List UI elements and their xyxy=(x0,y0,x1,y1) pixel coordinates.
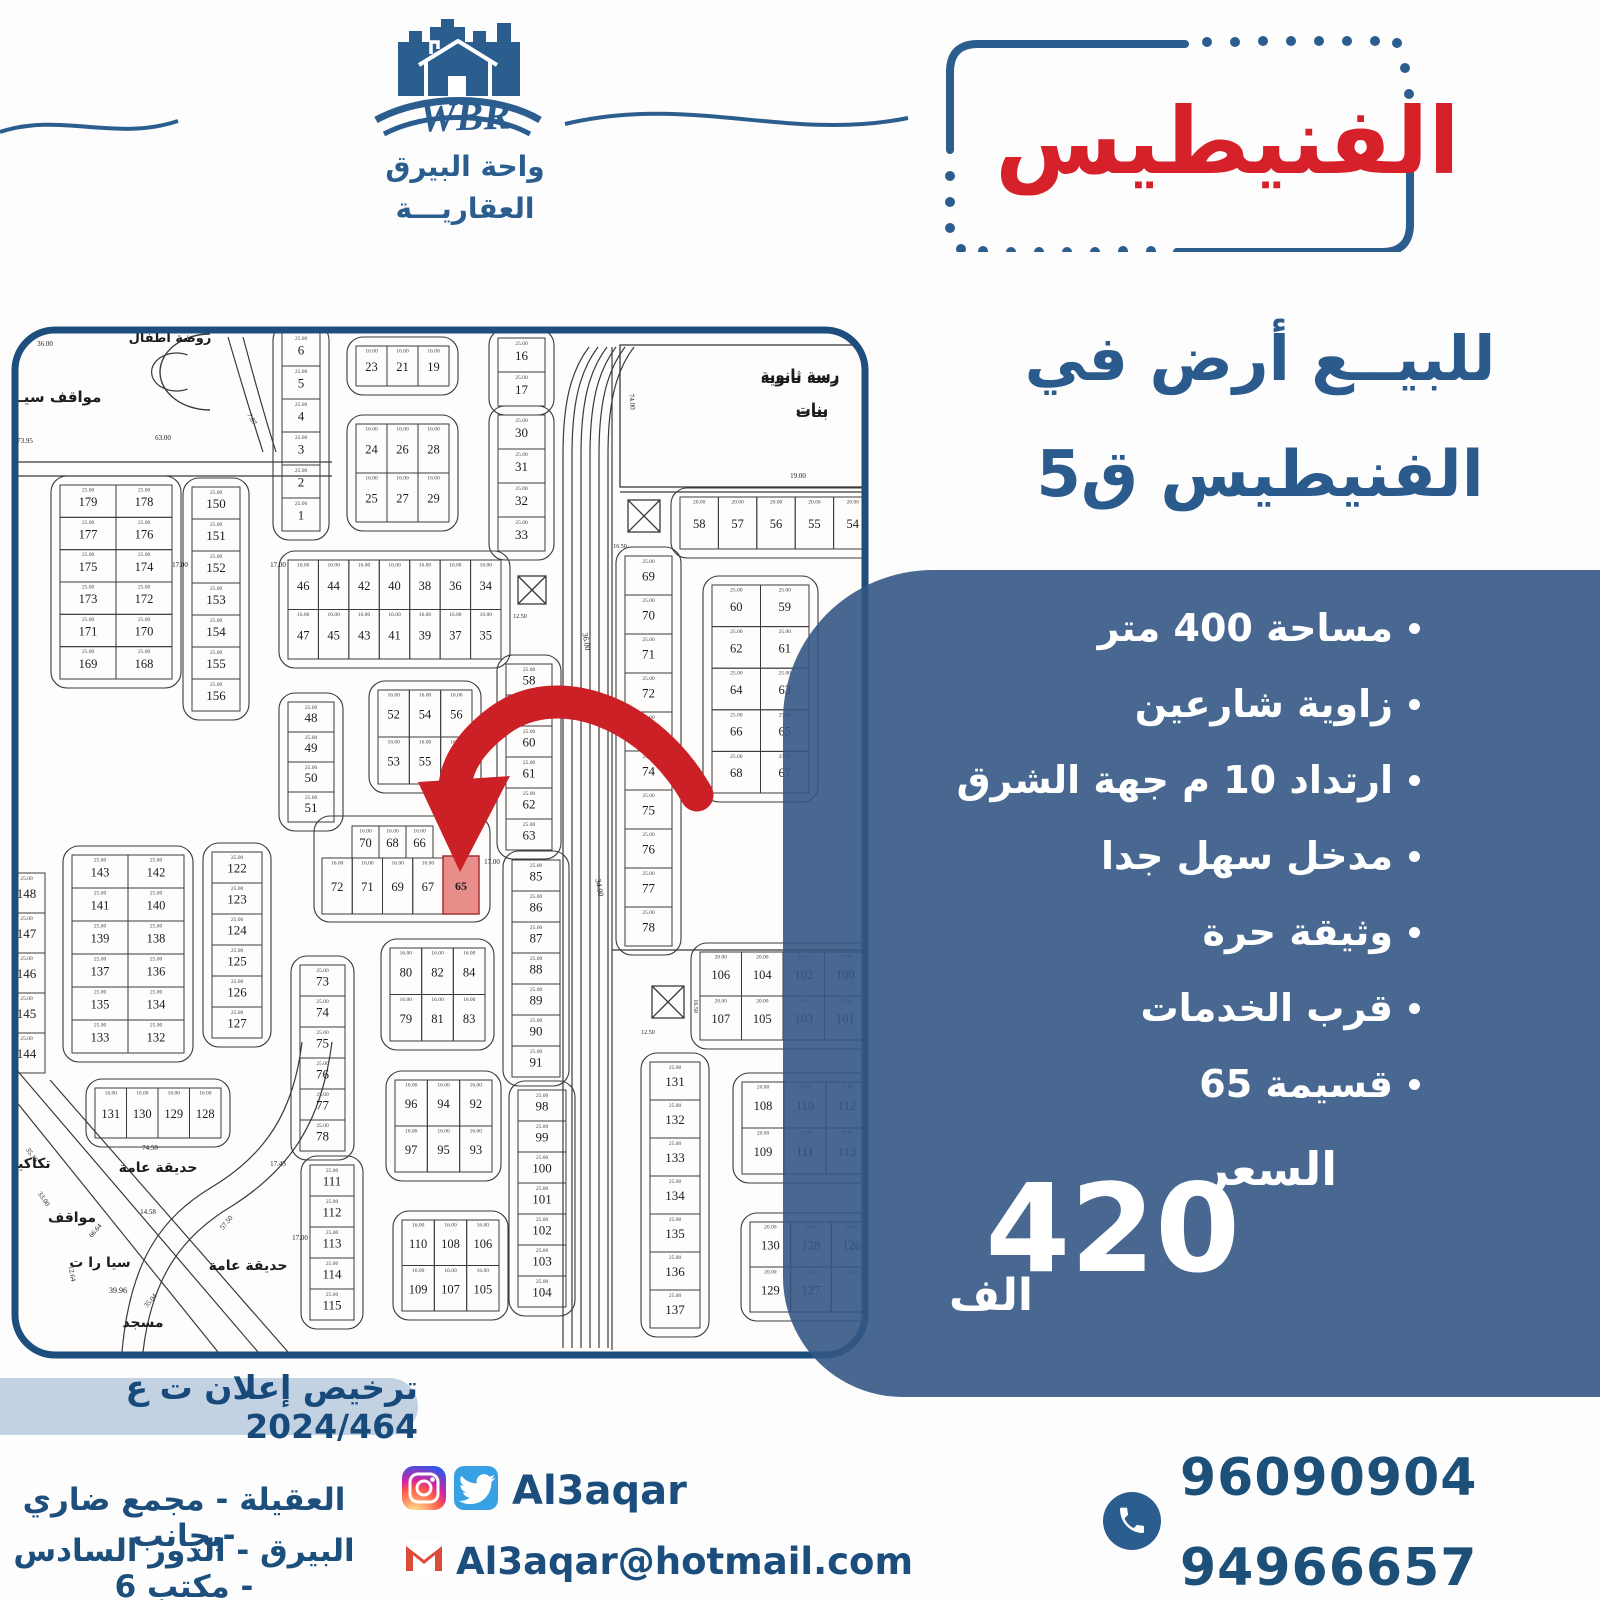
svg-text:16.00: 16.00 xyxy=(358,563,371,569)
svg-text:136: 136 xyxy=(665,1264,685,1279)
svg-text:25.00: 25.00 xyxy=(536,1248,549,1254)
svg-text:25.00: 25.00 xyxy=(231,886,244,892)
svg-text:90: 90 xyxy=(530,1024,543,1039)
svg-text:حديقة عامة: حديقة عامة xyxy=(119,1160,198,1176)
svg-text:16.00: 16.00 xyxy=(427,427,440,433)
headline-line2: الفنيطيس ق5 xyxy=(960,438,1560,512)
svg-text:53: 53 xyxy=(387,755,400,769)
svg-text:12.50: 12.50 xyxy=(641,1030,655,1036)
svg-text:63.00: 63.00 xyxy=(155,434,171,442)
bullet-text: قسيمة 65 xyxy=(1199,1062,1393,1106)
svg-text:103: 103 xyxy=(532,1254,552,1269)
svg-text:168: 168 xyxy=(135,657,154,671)
svg-text:56: 56 xyxy=(770,517,783,531)
svg-text:145: 145 xyxy=(17,1006,37,1021)
svg-text:حديقة عامة: حديقة عامة xyxy=(209,1258,288,1274)
svg-text:16.00: 16.00 xyxy=(419,563,432,569)
svg-text:68: 68 xyxy=(730,766,743,780)
svg-text:61: 61 xyxy=(779,641,792,655)
svg-text:171: 171 xyxy=(79,625,98,639)
svg-text:17.00: 17.00 xyxy=(484,858,500,866)
svg-text:106: 106 xyxy=(473,1237,492,1251)
svg-text:133: 133 xyxy=(91,1031,110,1045)
svg-text:16.00: 16.00 xyxy=(396,349,409,355)
area-title-box: الفنيطيس xyxy=(935,30,1520,252)
svg-text:25.00: 25.00 xyxy=(94,957,107,963)
svg-text:74.00: 74.00 xyxy=(627,394,636,411)
wave-right-icon xyxy=(565,114,908,125)
svg-text:20.00: 20.00 xyxy=(715,999,728,1005)
svg-text:25.00: 25.00 xyxy=(82,488,95,494)
svg-text:25.00: 25.00 xyxy=(326,1199,339,1205)
svg-text:49: 49 xyxy=(305,740,318,755)
svg-text:25.00: 25.00 xyxy=(730,754,743,760)
offer-bullet-item: مدخل سهل جدا xyxy=(1101,834,1420,878)
svg-text:174: 174 xyxy=(135,560,155,574)
svg-text:16.00: 16.00 xyxy=(419,693,432,699)
svg-text:بنات: بنات xyxy=(796,400,828,418)
offer-panel: مساحة 400 مترزاوية شارعينارتداد 10 م جهة… xyxy=(783,570,1600,1397)
svg-text:25.00: 25.00 xyxy=(523,822,536,828)
svg-text:106: 106 xyxy=(711,968,730,982)
svg-text:73.95: 73.95 xyxy=(17,437,33,445)
svg-text:25.00: 25.00 xyxy=(515,341,528,347)
svg-text:28: 28 xyxy=(427,443,440,457)
svg-text:25.00: 25.00 xyxy=(730,671,743,677)
wbr-wordmark: WBR xyxy=(399,90,531,143)
svg-text:74: 74 xyxy=(642,764,656,779)
svg-text:127: 127 xyxy=(227,1016,247,1031)
svg-text:146: 146 xyxy=(17,966,37,981)
svg-text:94: 94 xyxy=(437,1097,450,1111)
svg-text:142: 142 xyxy=(147,866,166,880)
svg-text:19.00: 19.00 xyxy=(790,472,806,480)
wave-left-icon xyxy=(0,121,178,132)
svg-text:25.00: 25.00 xyxy=(138,649,151,655)
svg-text:109: 109 xyxy=(754,1145,773,1159)
svg-text:16.00: 16.00 xyxy=(477,1268,490,1274)
svg-text:16: 16 xyxy=(515,348,529,363)
svg-text:25.00: 25.00 xyxy=(515,375,528,381)
svg-text:72: 72 xyxy=(642,686,655,701)
svg-text:16.00: 16.00 xyxy=(331,861,344,867)
svg-text:25.00: 25.00 xyxy=(642,832,655,838)
bullet-text: ارتداد 10 م جهة الشرق xyxy=(957,758,1393,802)
svg-text:25.00: 25.00 xyxy=(779,588,792,594)
svg-text:43: 43 xyxy=(358,628,371,642)
svg-text:140: 140 xyxy=(147,899,166,913)
bullet-text: مدخل سهل جدا xyxy=(1101,834,1393,878)
svg-text:25.00: 25.00 xyxy=(150,1023,163,1029)
svg-text:65: 65 xyxy=(455,879,467,893)
svg-text:76: 76 xyxy=(316,1067,330,1082)
svg-text:25.00: 25.00 xyxy=(305,765,318,771)
svg-text:99: 99 xyxy=(536,1130,549,1145)
svg-text:39.96: 39.96 xyxy=(109,1286,127,1295)
svg-text:64: 64 xyxy=(730,683,743,697)
svg-text:178: 178 xyxy=(135,495,154,509)
svg-text:36: 36 xyxy=(449,579,462,593)
svg-text:25.00: 25.00 xyxy=(316,968,329,974)
bullet-dot-icon xyxy=(1409,1079,1420,1090)
svg-text:16.00: 16.00 xyxy=(359,829,372,835)
svg-text:74: 74 xyxy=(316,1005,330,1020)
svg-text:131: 131 xyxy=(665,1074,685,1089)
svg-text:70: 70 xyxy=(642,608,655,623)
svg-text:16.00: 16.00 xyxy=(437,1083,450,1089)
phone-number-2: 94966657 xyxy=(1180,1538,1510,1598)
svg-text:23: 23 xyxy=(365,360,378,374)
svg-text:25.00: 25.00 xyxy=(730,588,743,594)
svg-text:141: 141 xyxy=(91,899,110,913)
svg-text:25.00: 25.00 xyxy=(295,336,308,342)
svg-text:25.00: 25.00 xyxy=(138,585,151,591)
svg-text:25.00: 25.00 xyxy=(642,871,655,877)
svg-text:25.00: 25.00 xyxy=(94,891,107,897)
svg-text:25.00: 25.00 xyxy=(530,956,543,962)
svg-text:25.00: 25.00 xyxy=(316,999,329,1005)
svg-text:25.00: 25.00 xyxy=(730,629,743,635)
svg-text:16.00: 16.00 xyxy=(386,829,399,835)
svg-text:16.00: 16.00 xyxy=(427,349,440,355)
svg-text:29: 29 xyxy=(427,492,440,506)
svg-text:17.00: 17.00 xyxy=(172,561,188,569)
svg-text:25.00: 25.00 xyxy=(210,490,223,496)
svg-text:75: 75 xyxy=(316,1036,329,1051)
svg-text:25.00: 25.00 xyxy=(669,1217,682,1223)
bullet-dot-icon xyxy=(1409,623,1420,634)
instagram-icon xyxy=(402,1466,446,1510)
svg-text:130: 130 xyxy=(133,1107,152,1121)
svg-text:124: 124 xyxy=(227,923,247,938)
bullet-text: مساحة 400 متر xyxy=(1098,606,1393,650)
svg-text:16.00: 16.00 xyxy=(463,997,476,1003)
svg-text:12.50: 12.50 xyxy=(513,614,527,620)
svg-text:86: 86 xyxy=(530,900,544,915)
svg-text:25.00: 25.00 xyxy=(231,979,244,985)
bullet-text: زاوية شارعين xyxy=(1135,682,1393,726)
svg-text:69: 69 xyxy=(391,880,404,894)
svg-text:136: 136 xyxy=(147,965,166,979)
svg-text:4: 4 xyxy=(298,409,305,424)
svg-text:25.00: 25.00 xyxy=(295,435,308,441)
svg-text:16.00: 16.00 xyxy=(470,1083,483,1089)
svg-text:20.00: 20.00 xyxy=(731,500,744,506)
svg-text:107: 107 xyxy=(441,1282,460,1296)
svg-text:16.00: 16.00 xyxy=(387,740,400,746)
svg-text:44: 44 xyxy=(327,579,340,593)
svg-text:16.00: 16.00 xyxy=(431,997,444,1003)
svg-text:20.00: 20.00 xyxy=(756,999,769,1005)
svg-text:16.00: 16.00 xyxy=(437,1129,450,1135)
svg-text:78: 78 xyxy=(642,920,655,935)
svg-text:5: 5 xyxy=(298,376,305,391)
bullet-dot-icon xyxy=(1409,1003,1420,1014)
svg-text:51: 51 xyxy=(305,800,318,815)
svg-text:19: 19 xyxy=(427,360,440,374)
svg-text:77: 77 xyxy=(316,1098,330,1113)
svg-text:20.00: 20.00 xyxy=(756,955,769,961)
svg-text:130: 130 xyxy=(761,1239,780,1253)
svg-text:25.00: 25.00 xyxy=(150,990,163,996)
svg-text:25.00: 25.00 xyxy=(515,452,528,458)
svg-text:27: 27 xyxy=(396,492,409,506)
svg-text:16.00: 16.00 xyxy=(413,829,426,835)
svg-text:1: 1 xyxy=(298,508,305,523)
svg-text:101: 101 xyxy=(532,1192,552,1207)
svg-text:68: 68 xyxy=(386,836,399,850)
svg-text:25.00: 25.00 xyxy=(523,791,536,797)
svg-text:6: 6 xyxy=(298,343,305,358)
svg-text:98: 98 xyxy=(536,1099,549,1114)
svg-text:20.00: 20.00 xyxy=(757,1131,770,1137)
svg-text:25.00: 25.00 xyxy=(295,501,308,507)
svg-text:25.00: 25.00 xyxy=(150,891,163,897)
headline-line1: للبيــع أرض في xyxy=(960,322,1560,395)
svg-text:16.00: 16.00 xyxy=(419,612,432,618)
svg-text:105: 105 xyxy=(473,1282,492,1296)
svg-text:24: 24 xyxy=(365,443,378,457)
svg-text:25.00: 25.00 xyxy=(231,948,244,954)
svg-text:20.00: 20.00 xyxy=(693,500,706,506)
svg-text:50: 50 xyxy=(305,770,318,785)
svg-text:25.00: 25.00 xyxy=(210,650,223,656)
svg-text:32: 32 xyxy=(515,493,528,508)
svg-text:72: 72 xyxy=(331,880,344,894)
svg-text:25.00: 25.00 xyxy=(82,649,95,655)
svg-text:37: 37 xyxy=(449,628,462,642)
svg-text:108: 108 xyxy=(441,1237,460,1251)
svg-text:62: 62 xyxy=(730,641,743,655)
svg-text:25.00: 25.00 xyxy=(210,554,223,560)
svg-text:25.00: 25.00 xyxy=(138,488,151,494)
svg-text:25.00: 25.00 xyxy=(515,486,528,492)
svg-text:16.00: 16.00 xyxy=(405,1083,418,1089)
svg-text:112: 112 xyxy=(322,1205,341,1220)
svg-text:25.00: 25.00 xyxy=(82,617,95,623)
svg-text:14.58: 14.58 xyxy=(140,1208,156,1216)
svg-text:16.00: 16.00 xyxy=(444,1268,457,1274)
svg-text:115: 115 xyxy=(322,1298,341,1313)
svg-text:58: 58 xyxy=(693,517,706,531)
svg-text:25.00: 25.00 xyxy=(642,598,655,604)
svg-text:16.00: 16.00 xyxy=(391,861,404,867)
svg-text:48: 48 xyxy=(305,710,318,725)
svg-text:66: 66 xyxy=(730,725,743,739)
svg-text:89: 89 xyxy=(530,993,543,1008)
svg-text:173: 173 xyxy=(79,592,98,606)
svg-text:35: 35 xyxy=(480,628,493,642)
svg-text:25.00: 25.00 xyxy=(515,418,528,424)
svg-text:25.00: 25.00 xyxy=(305,705,318,711)
svg-text:114: 114 xyxy=(322,1267,342,1282)
svg-text:40: 40 xyxy=(388,579,401,593)
svg-text:77: 77 xyxy=(642,881,656,896)
svg-text:20.00: 20.00 xyxy=(808,500,821,506)
svg-text:25.00: 25.00 xyxy=(669,1103,682,1109)
svg-text:170: 170 xyxy=(135,625,154,639)
offer-bullet-item: ارتداد 10 م جهة الشرق xyxy=(957,758,1420,802)
svg-text:75: 75 xyxy=(642,803,655,818)
svg-text:25.00: 25.00 xyxy=(536,1155,549,1161)
svg-text:16.00: 16.00 xyxy=(327,563,340,569)
svg-text:17: 17 xyxy=(515,382,529,397)
svg-text:25.00: 25.00 xyxy=(305,795,318,801)
svg-text:42: 42 xyxy=(358,579,371,593)
svg-text:25.00: 25.00 xyxy=(20,996,33,1002)
svg-text:21: 21 xyxy=(396,360,409,374)
svg-text:16.00: 16.00 xyxy=(396,476,409,482)
svg-text:96: 96 xyxy=(405,1097,418,1111)
svg-text:125: 125 xyxy=(227,954,247,969)
svg-text:138: 138 xyxy=(147,932,166,946)
svg-text:93: 93 xyxy=(470,1143,483,1157)
svg-text:179: 179 xyxy=(79,495,98,509)
svg-text:16.00: 16.00 xyxy=(365,476,378,482)
svg-text:25.00: 25.00 xyxy=(295,468,308,474)
svg-text:16.00: 16.00 xyxy=(297,612,310,618)
svg-text:25.00: 25.00 xyxy=(326,1168,339,1174)
svg-text:16.00: 16.00 xyxy=(450,693,463,699)
svg-text:109: 109 xyxy=(409,1282,428,1296)
svg-text:132: 132 xyxy=(665,1112,685,1127)
offer-bullet-item: وثيقة حرة xyxy=(1203,910,1420,954)
svg-text:20.00: 20.00 xyxy=(764,1270,777,1276)
bullet-dot-icon xyxy=(1409,927,1420,938)
svg-text:2: 2 xyxy=(298,475,305,490)
svg-text:25.00: 25.00 xyxy=(150,858,163,864)
svg-text:16.00: 16.00 xyxy=(405,1129,418,1135)
svg-text:113: 113 xyxy=(322,1236,341,1251)
price-unit: الف xyxy=(949,1270,1033,1321)
svg-text:25.00: 25.00 xyxy=(730,712,743,718)
svg-text:132: 132 xyxy=(147,1031,166,1045)
svg-text:131: 131 xyxy=(101,1107,120,1121)
svg-text:111: 111 xyxy=(323,1174,342,1189)
svg-text:177: 177 xyxy=(79,528,98,542)
svg-text:63: 63 xyxy=(523,828,536,843)
social-handle: Al3aqar xyxy=(512,1468,687,1514)
svg-text:144: 144 xyxy=(17,1046,37,1061)
email-text: Al3aqar@hotmail.com xyxy=(456,1540,913,1583)
svg-text:16.00: 16.00 xyxy=(419,740,432,746)
svg-text:مواقف: مواقف xyxy=(48,1210,96,1226)
flyer-page: WBR واحة البيرق العقاريـــة الفنيطيس للب… xyxy=(0,0,1600,1600)
svg-text:39: 39 xyxy=(419,628,432,642)
brand-name-line1: واحة البيرق xyxy=(380,150,550,183)
svg-text:16.00: 16.00 xyxy=(449,612,462,618)
svg-text:134: 134 xyxy=(665,1188,685,1203)
svg-text:31: 31 xyxy=(515,459,528,474)
svg-text:16.00: 16.00 xyxy=(105,1091,118,1097)
svg-text:16.00: 16.00 xyxy=(431,951,444,957)
svg-text:25.00: 25.00 xyxy=(642,676,655,682)
svg-text:25.00: 25.00 xyxy=(210,586,223,592)
svg-text:129: 129 xyxy=(164,1107,183,1121)
svg-text:25.00: 25.00 xyxy=(316,1030,329,1036)
svg-text:66: 66 xyxy=(413,836,426,850)
svg-text:57: 57 xyxy=(731,517,744,531)
svg-text:87: 87 xyxy=(530,931,544,946)
svg-text:88: 88 xyxy=(530,962,543,977)
svg-text:25.00: 25.00 xyxy=(530,863,543,869)
svg-text:55: 55 xyxy=(808,517,821,531)
svg-text:97: 97 xyxy=(405,1143,418,1157)
svg-text:25.00: 25.00 xyxy=(530,987,543,993)
svg-text:16.00: 16.00 xyxy=(199,1091,212,1097)
svg-text:16.00: 16.00 xyxy=(358,612,371,618)
svg-text:137: 137 xyxy=(665,1302,685,1317)
svg-text:25.00: 25.00 xyxy=(530,1018,543,1024)
svg-text:16.00: 16.00 xyxy=(400,997,413,1003)
svg-text:16.00: 16.00 xyxy=(327,612,340,618)
svg-text:25.00: 25.00 xyxy=(669,1179,682,1185)
svg-text:105: 105 xyxy=(753,1012,772,1026)
svg-text:17.00: 17.00 xyxy=(270,561,286,569)
svg-text:56: 56 xyxy=(450,708,463,722)
svg-text:25.00: 25.00 xyxy=(231,917,244,923)
svg-text:16.50: 16.50 xyxy=(692,999,698,1013)
svg-text:16.00: 16.00 xyxy=(463,951,476,957)
svg-text:102: 102 xyxy=(532,1223,552,1238)
svg-text:20.00: 20.00 xyxy=(764,1225,777,1231)
svg-text:25.00: 25.00 xyxy=(530,894,543,900)
svg-text:74.50: 74.50 xyxy=(142,1144,158,1152)
svg-text:100: 100 xyxy=(532,1161,552,1176)
svg-text:76: 76 xyxy=(642,842,656,857)
svg-text:16.00: 16.00 xyxy=(396,427,409,433)
bullet-dot-icon xyxy=(1409,699,1420,710)
svg-text:16.00: 16.00 xyxy=(449,563,462,569)
svg-text:16.00: 16.00 xyxy=(387,693,400,699)
svg-text:143: 143 xyxy=(91,866,110,880)
svg-text:148: 148 xyxy=(17,886,37,901)
svg-text:91: 91 xyxy=(530,1055,543,1070)
svg-text:25.00: 25.00 xyxy=(669,1141,682,1147)
svg-text:25.00: 25.00 xyxy=(669,1065,682,1071)
svg-text:16.00: 16.00 xyxy=(361,861,374,867)
svg-text:25.00: 25.00 xyxy=(210,522,223,528)
svg-text:25.00: 25.00 xyxy=(515,520,528,526)
svg-text:25.00: 25.00 xyxy=(231,855,244,861)
svg-text:20.00: 20.00 xyxy=(847,500,860,506)
svg-text:16.00: 16.00 xyxy=(365,349,378,355)
svg-text:3: 3 xyxy=(298,442,305,457)
svg-text:25.00: 25.00 xyxy=(210,682,223,688)
svg-text:41: 41 xyxy=(388,628,401,642)
svg-text:34: 34 xyxy=(480,579,493,593)
svg-text:25.00: 25.00 xyxy=(326,1261,339,1267)
brand-name-line2: العقاريـــة xyxy=(380,192,550,225)
svg-text:16.00: 16.00 xyxy=(470,1129,483,1135)
svg-text:79: 79 xyxy=(400,1012,413,1026)
svg-text:رسة ثانوية: رسة ثانوية xyxy=(761,366,840,384)
svg-text:129: 129 xyxy=(761,1284,780,1298)
svg-text:25.00: 25.00 xyxy=(316,1123,329,1129)
svg-text:60: 60 xyxy=(730,600,743,614)
svg-text:25.00: 25.00 xyxy=(642,637,655,643)
svg-text:110: 110 xyxy=(409,1237,427,1251)
svg-text:45: 45 xyxy=(327,628,340,642)
svg-text:156: 156 xyxy=(206,688,226,703)
svg-text:25.00: 25.00 xyxy=(642,559,655,565)
svg-text:مواقف سيـ: مواقف سيـ xyxy=(18,388,102,406)
svg-text:169: 169 xyxy=(79,657,98,671)
svg-text:25.00: 25.00 xyxy=(295,402,308,408)
svg-text:16.00: 16.00 xyxy=(480,612,493,618)
svg-text:104: 104 xyxy=(532,1285,552,1300)
bullet-dot-icon xyxy=(1409,775,1420,786)
